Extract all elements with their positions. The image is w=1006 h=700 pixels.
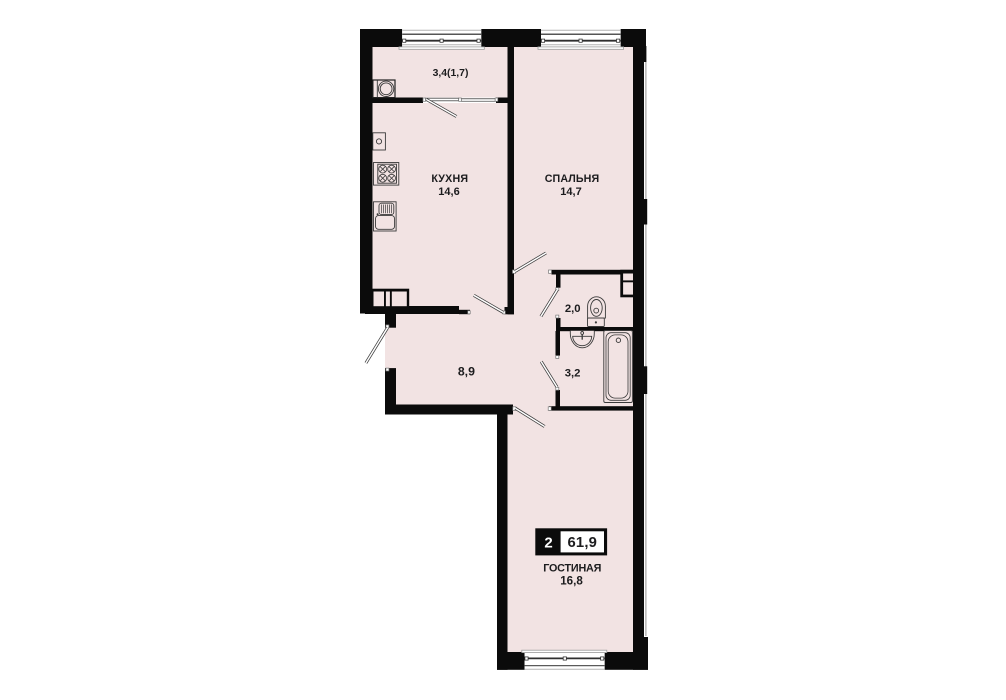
svg-text:3,2: 3,2 xyxy=(565,367,581,379)
svg-text:61,9: 61,9 xyxy=(567,535,597,551)
svg-text:СПАЛЬНЯ: СПАЛЬНЯ xyxy=(545,173,600,185)
svg-text:2,0: 2,0 xyxy=(565,303,581,315)
svg-text:2: 2 xyxy=(544,535,552,552)
svg-text:ГОСТИНАЯ: ГОСТИНАЯ xyxy=(543,562,601,574)
svg-text:14,7: 14,7 xyxy=(560,186,581,198)
svg-text:КУХНЯ: КУХНЯ xyxy=(431,173,468,185)
svg-text:8,9: 8,9 xyxy=(458,365,475,379)
svg-text:3,4(1,7): 3,4(1,7) xyxy=(433,68,469,79)
svg-text:16,8: 16,8 xyxy=(560,574,583,587)
svg-text:14,6: 14,6 xyxy=(438,186,459,198)
